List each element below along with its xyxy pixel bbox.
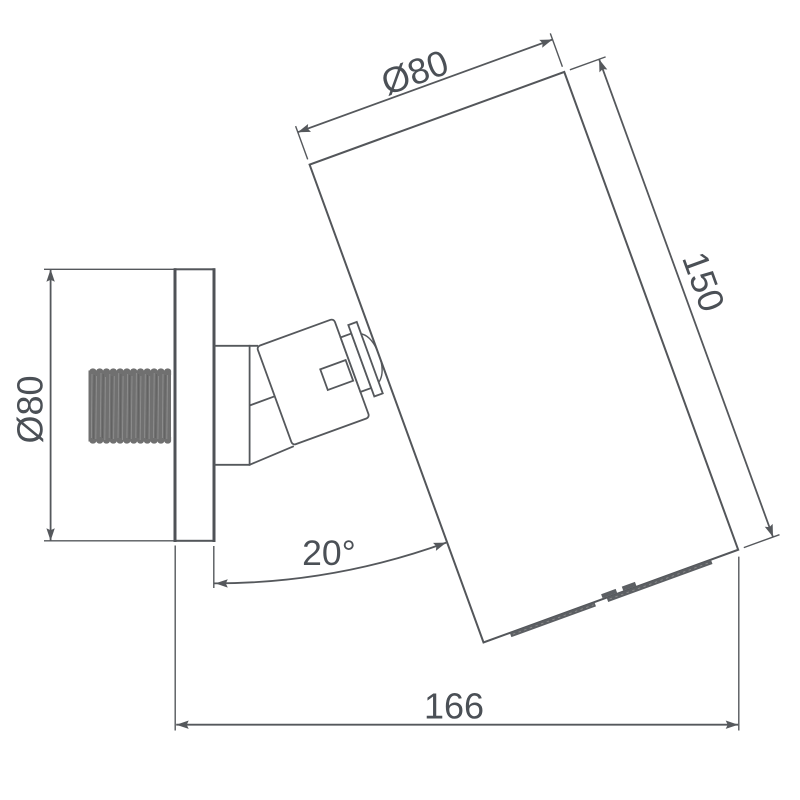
svg-text:Ø80: Ø80 — [10, 375, 51, 443]
svg-text:166: 166 — [424, 686, 484, 727]
svg-text:20°: 20° — [302, 533, 356, 573]
